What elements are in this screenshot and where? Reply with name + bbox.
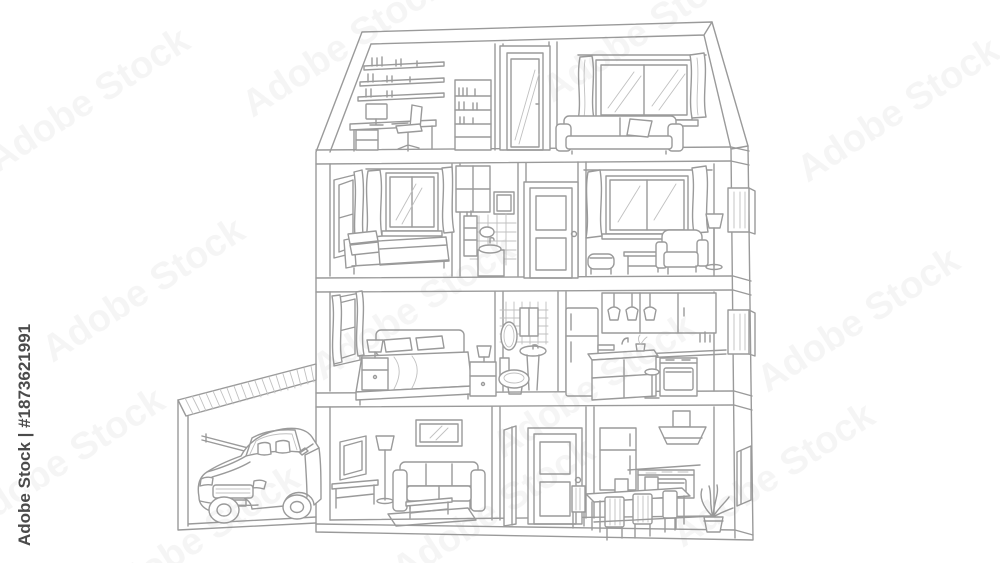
stock-image-canvas: Adobe Stock Adobe Stock Adobe Stock Adob… — [0, 0, 1000, 563]
attic-hall-door — [500, 46, 550, 150]
watermark-id-label: Adobe Stock | #1873621991 — [15, 324, 34, 546]
watermark-tile: Adobe Stock — [750, 239, 968, 401]
wall-picture — [416, 420, 462, 446]
shutter-box-upper — [728, 188, 755, 234]
f3-window — [382, 173, 442, 236]
watermark-tile: Adobe Stock — [90, 457, 308, 563]
bookcase — [455, 80, 491, 150]
house-cutaway-illustration: Adobe Stock Adobe Stock Adobe Stock Adob… — [0, 0, 1000, 563]
watermark-tile: Adobe Stock — [0, 19, 198, 181]
f3-door — [524, 182, 578, 278]
oval-mirror — [501, 322, 517, 350]
watermark-tile: Adobe Stock — [790, 29, 1000, 191]
garage-roof — [178, 364, 316, 416]
lounge-sofa — [556, 116, 683, 154]
watermark-tile: Adobe Stock — [35, 209, 253, 371]
f3-bedroom — [334, 167, 454, 274]
tv — [340, 436, 366, 480]
